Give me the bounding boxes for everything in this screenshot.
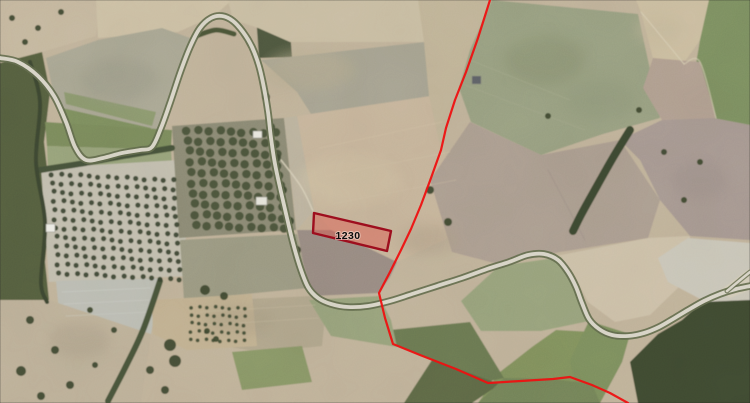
map-viewport[interactable]: 1230 — [0, 0, 750, 403]
photo-mottle-texture — [0, 0, 750, 403]
satellite-imagery: 1230 — [0, 0, 750, 403]
parcel-label: 1230 — [336, 230, 361, 242]
